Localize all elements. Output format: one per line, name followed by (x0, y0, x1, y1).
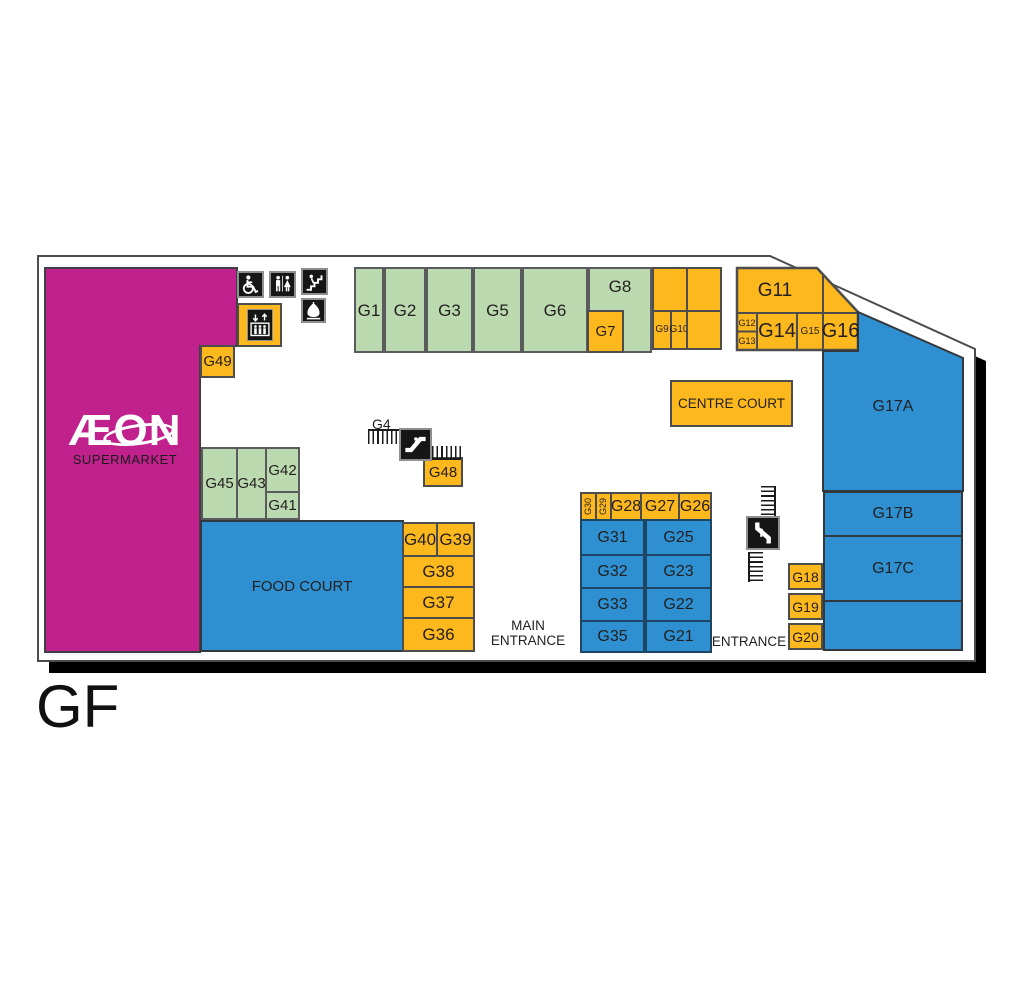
floor-label-text: GF (36, 673, 119, 740)
centre-court[interactable]: CENTRE COURT (670, 380, 793, 427)
main-entrance-label: MAIN ENTRANCE (485, 618, 571, 648)
room-g33[interactable]: G33 (580, 587, 645, 622)
entrance-text: ENTRANCE (712, 634, 786, 649)
room-label: G25 (663, 530, 693, 546)
supermarket-label: SUPERMARKET (55, 452, 195, 467)
room-g48[interactable]: G48 (423, 457, 463, 487)
room-g16[interactable]: G16 (823, 313, 858, 350)
room-unlabeled-a1[interactable] (652, 267, 688, 312)
supermarket-text: SUPERMARKET (73, 452, 177, 467)
toilets-icon (269, 271, 296, 298)
room-label: G33 (597, 597, 627, 613)
main-entrance-line2: ENTRANCE (491, 633, 565, 648)
room-label: G38 (422, 563, 454, 580)
entrance-label: ENTRANCE (710, 634, 788, 649)
room-label: G16 (822, 320, 860, 343)
room-label: G42 (268, 463, 296, 478)
room-g19[interactable]: G19 (788, 593, 823, 620)
room-label: G21 (663, 629, 693, 645)
main-entrance-line1: MAIN (511, 618, 545, 633)
room-label: G20 (792, 630, 818, 644)
room-g5[interactable]: G5 (473, 267, 522, 353)
room-g21[interactable]: G21 (645, 620, 712, 653)
prayer-room-icon (301, 298, 326, 323)
room-label: G6 (544, 302, 567, 319)
room-g42[interactable]: G42 (265, 447, 300, 493)
escalator-steps (761, 486, 776, 517)
room-g14[interactable]: G14 (757, 313, 797, 350)
room-g13[interactable]: G13 (737, 333, 757, 349)
food-court[interactable]: FOOD COURT (200, 520, 404, 652)
room-label: G23 (663, 564, 693, 580)
room-g26[interactable]: G26 (678, 492, 712, 521)
room-g27[interactable]: G27 (640, 492, 680, 521)
room-g18[interactable]: G18 (788, 563, 823, 590)
room-g28[interactable]: G28 (610, 492, 642, 521)
room-g25[interactable]: G25 (645, 519, 712, 556)
room-g45[interactable]: G45 (201, 447, 238, 520)
room-unlabeled-blue[interactable] (823, 600, 963, 651)
room-label: G12 (738, 318, 755, 328)
room-label: G29 (599, 498, 608, 515)
room-g7[interactable]: G7 (587, 310, 624, 353)
room-unlabeled-a2[interactable] (686, 267, 722, 312)
room-g22[interactable]: G22 (645, 587, 712, 622)
room-label: G8 (609, 278, 632, 295)
room-label: G41 (268, 498, 296, 513)
room-label: G32 (597, 564, 627, 580)
room-g1[interactable]: G1 (354, 267, 384, 353)
room-label: G11 (758, 280, 793, 302)
room-label: G40 (404, 531, 436, 548)
escalator-icon (399, 428, 432, 461)
room-g39[interactable]: G39 (436, 522, 475, 557)
floor-label: GF (36, 672, 119, 741)
room-label: G31 (597, 530, 627, 546)
room-unlabeled-a3[interactable] (686, 310, 722, 350)
elevator-icon (247, 309, 273, 341)
room-g31[interactable]: G31 (580, 519, 645, 556)
room-g23[interactable]: G23 (645, 554, 712, 589)
room-label: G7 (595, 324, 615, 339)
room-label: G18 (792, 570, 818, 584)
room-g17b[interactable]: G17B (823, 491, 963, 537)
escalator-steps (432, 446, 461, 460)
room-label: G35 (597, 629, 627, 645)
room-g41[interactable]: G41 (265, 491, 300, 520)
wheelchair-icon (237, 271, 264, 298)
room-g3[interactable]: G3 (426, 267, 473, 353)
room-label: G17C (872, 561, 914, 577)
room-g2[interactable]: G2 (384, 267, 426, 353)
room-g49[interactable]: G49 (200, 345, 235, 378)
room-label: G15 (801, 326, 820, 337)
room-label: G17B (873, 506, 914, 522)
stairs-icon (301, 268, 328, 295)
room-g17a[interactable]: G17A (843, 392, 943, 422)
food-court-label: FOOD COURT (252, 579, 353, 594)
room-label: G22 (663, 597, 693, 613)
room-label: G45 (205, 476, 233, 491)
escalator-icon (746, 516, 780, 550)
room-g43[interactable]: G43 (236, 447, 267, 520)
room-label: G2 (394, 302, 417, 319)
room-label: G27 (645, 499, 675, 515)
floor-plan-gf: G1 G2 G3 G5 G6 G8 G7 G9 G10 G11 G12 G13 … (0, 0, 1023, 1000)
room-label: G43 (237, 476, 265, 491)
room-label: G30 (584, 498, 593, 515)
escalator-steps (748, 552, 763, 582)
room-g32[interactable]: G32 (580, 554, 645, 589)
room-g11[interactable]: G11 (737, 272, 813, 310)
room-label: G9 (655, 325, 668, 335)
room-label: G3 (438, 302, 461, 319)
room-label: G28 (611, 499, 641, 515)
room-g38[interactable]: G38 (402, 555, 475, 588)
room-g6[interactable]: G6 (522, 267, 588, 353)
room-g40[interactable]: G40 (402, 522, 438, 557)
room-label: G17A (873, 398, 914, 416)
room-label: G14 (758, 320, 796, 343)
room-label: G19 (792, 600, 818, 614)
room-label: G37 (422, 594, 454, 611)
room-label: G36 (422, 626, 454, 643)
room-label: G1 (358, 302, 381, 319)
room-g15[interactable]: G15 (797, 313, 823, 350)
room-g20[interactable]: G20 (788, 623, 823, 650)
room-label: G48 (429, 465, 457, 480)
room-label: G26 (680, 499, 710, 515)
room-g17c[interactable]: G17C (823, 535, 963, 602)
room-label: G5 (486, 302, 509, 319)
room-g12[interactable]: G12 (737, 314, 757, 331)
room-g37[interactable]: G37 (402, 586, 475, 619)
room-label: G39 (439, 531, 471, 548)
room-label: G49 (203, 354, 231, 369)
room-label: G13 (738, 336, 755, 346)
room-g35[interactable]: G35 (580, 620, 645, 653)
escalator-steps (368, 429, 401, 444)
room-g36[interactable]: G36 (402, 617, 475, 652)
centre-court-label: CENTRE COURT (678, 397, 785, 411)
